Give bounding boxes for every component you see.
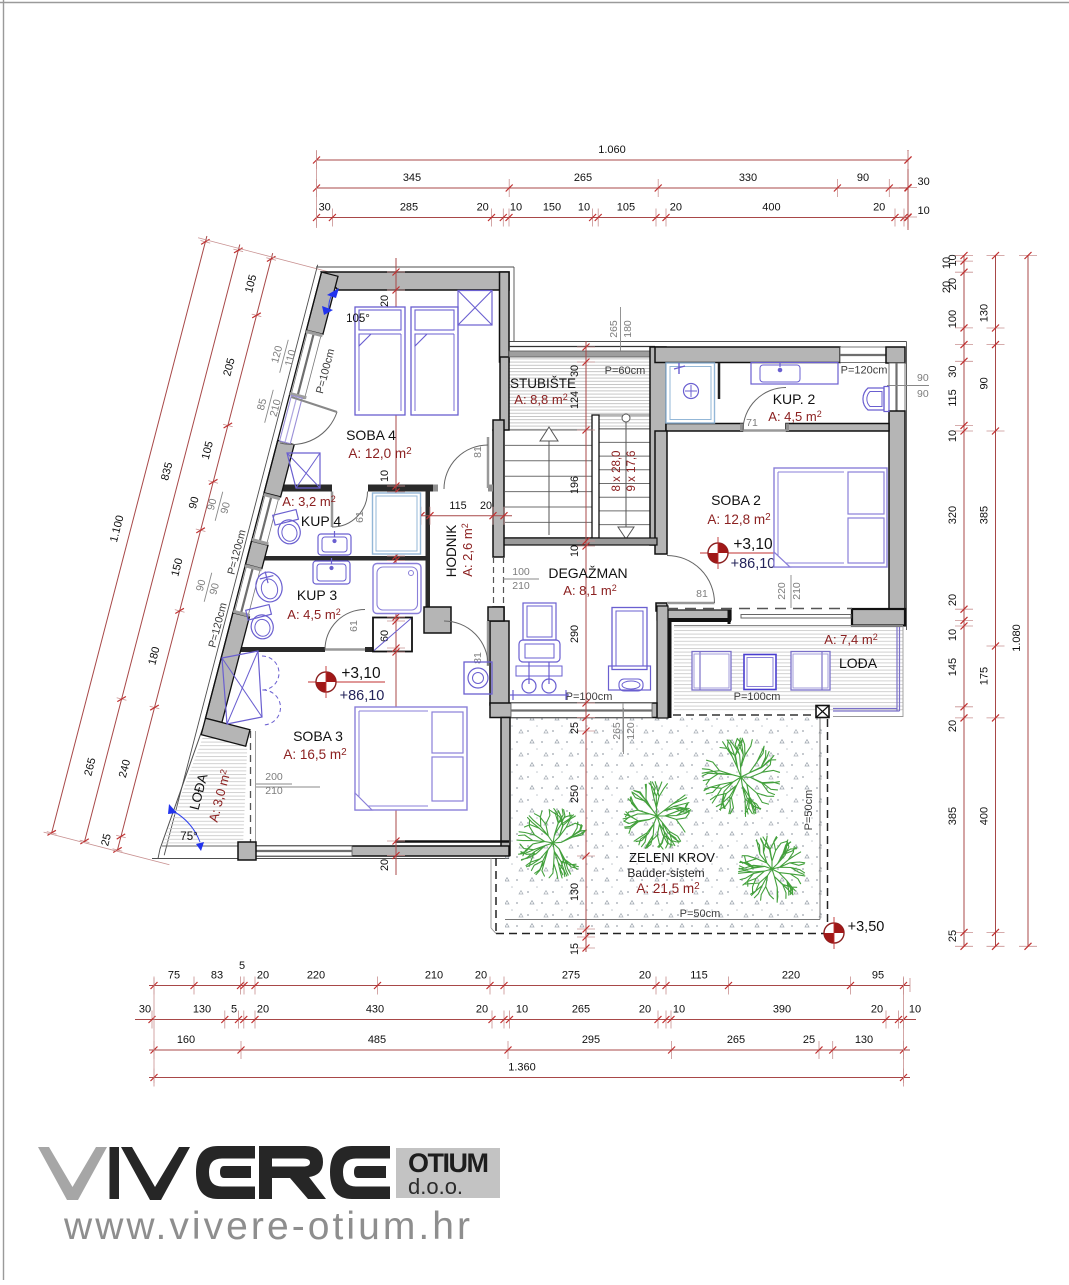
svg-text:25: 25 (569, 722, 581, 734)
svg-text:d.o.o.: d.o.o. (408, 1174, 463, 1199)
svg-text:A: 12,8 m2: A: 12,8 m2 (707, 512, 771, 527)
svg-text:100: 100 (947, 310, 959, 328)
svg-text:A: 4,5 m2: A: 4,5 m2 (768, 409, 821, 424)
svg-text:265: 265 (574, 172, 592, 184)
svg-text:10: 10 (379, 470, 391, 482)
svg-text:210: 210 (512, 580, 530, 592)
svg-text:9 x 17,6: 9 x 17,6 (626, 451, 638, 492)
svg-text:265: 265 (608, 320, 620, 338)
svg-text:180: 180 (622, 320, 634, 338)
svg-text:196: 196 (569, 476, 581, 494)
svg-text:P=100cm: P=100cm (566, 691, 613, 703)
svg-text:81: 81 (696, 588, 708, 600)
svg-text:220: 220 (307, 970, 325, 982)
svg-text:10: 10 (918, 205, 930, 217)
svg-text:430: 430 (366, 1004, 384, 1016)
svg-text:390: 390 (773, 1004, 791, 1016)
svg-text:20: 20 (257, 970, 269, 982)
svg-text:30: 30 (947, 365, 959, 377)
svg-text:200: 200 (265, 771, 283, 783)
svg-text:20: 20 (480, 500, 492, 512)
svg-text:ZELENI KROV: ZELENI KROV (629, 850, 715, 865)
svg-text:A: 2,6 m2: A: 2,6 m2 (460, 523, 475, 576)
svg-text:20: 20 (475, 970, 487, 982)
svg-text:+86,10: +86,10 (731, 556, 776, 572)
svg-text:265: 265 (611, 722, 623, 740)
svg-text:160: 160 (177, 1034, 195, 1046)
svg-text:10: 10 (941, 257, 953, 269)
svg-text:400: 400 (979, 807, 991, 825)
svg-text:275: 275 (562, 970, 580, 982)
svg-text:81: 81 (472, 446, 484, 458)
svg-text:124: 124 (569, 391, 581, 409)
svg-text:20: 20 (639, 970, 651, 982)
svg-text:10: 10 (947, 629, 959, 641)
svg-text:A: 21,5 m2: A: 21,5 m2 (636, 881, 700, 896)
svg-text:115: 115 (449, 500, 466, 512)
svg-text:A: 8,1 m2: A: 8,1 m2 (563, 583, 616, 598)
svg-text:+3,10: +3,10 (341, 665, 381, 682)
svg-text:25: 25 (803, 1034, 815, 1046)
svg-text:210: 210 (425, 970, 443, 982)
svg-text:10: 10 (510, 202, 522, 214)
svg-text:320: 320 (947, 506, 959, 524)
svg-text:20: 20 (947, 594, 959, 606)
svg-text:20: 20 (873, 202, 885, 214)
svg-text:10: 10 (578, 202, 590, 214)
svg-text:250: 250 (569, 785, 581, 803)
svg-text:30: 30 (569, 365, 581, 377)
svg-text:61: 61 (354, 511, 366, 523)
svg-text:SOBA 4: SOBA 4 (346, 427, 396, 443)
svg-text:385: 385 (979, 506, 991, 524)
svg-text:P=120cm: P=120cm (841, 365, 888, 377)
svg-text:20: 20 (639, 1004, 651, 1016)
svg-text:20: 20 (476, 1004, 488, 1016)
svg-text:330: 330 (739, 172, 757, 184)
svg-text:345: 345 (403, 172, 421, 184)
svg-text:105: 105 (617, 202, 635, 214)
svg-text:20: 20 (947, 720, 959, 732)
svg-text:90: 90 (917, 388, 929, 400)
svg-text:5: 5 (231, 1004, 237, 1016)
svg-text:120: 120 (625, 722, 637, 740)
svg-text:DEGAŽMAN: DEGAŽMAN (548, 565, 627, 581)
svg-text:10: 10 (569, 545, 581, 557)
svg-text:265: 265 (727, 1034, 745, 1046)
svg-text:130: 130 (569, 883, 581, 901)
svg-text:385: 385 (947, 807, 959, 825)
svg-text:90: 90 (917, 372, 929, 384)
svg-text:400: 400 (762, 202, 780, 214)
svg-text:1.080: 1.080 (1011, 624, 1023, 652)
svg-text:A: 8,8 m2: A: 8,8 m2 (514, 392, 567, 407)
svg-text:A: 4,5 m2: A: 4,5 m2 (287, 607, 340, 622)
svg-text:1.060: 1.060 (598, 144, 626, 156)
svg-text:30: 30 (918, 176, 930, 188)
svg-text:HODNIK: HODNIK (444, 525, 459, 578)
svg-text:100: 100 (512, 566, 530, 578)
svg-text:A: 16,5 m2: A: 16,5 m2 (283, 747, 347, 762)
svg-text:20: 20 (477, 202, 489, 214)
svg-text:220: 220 (782, 970, 800, 982)
svg-text:20: 20 (941, 281, 953, 293)
svg-text:220: 220 (776, 582, 788, 600)
svg-text:115: 115 (947, 389, 959, 407)
svg-text:5: 5 (239, 960, 245, 972)
svg-text:KUP 3: KUP 3 (297, 587, 337, 603)
svg-text:LOĐA: LOĐA (839, 655, 878, 671)
svg-text:A: 3,2 m2: A: 3,2 m2 (282, 494, 335, 509)
svg-text:A: 12,0 m2: A: 12,0 m2 (348, 446, 412, 461)
svg-text:A: 7,4 m2: A: 7,4 m2 (824, 632, 877, 647)
svg-text:20: 20 (379, 295, 391, 307)
svg-text:+3,10: +3,10 (733, 536, 773, 553)
svg-text:175: 175 (979, 667, 991, 685)
svg-text:150: 150 (543, 202, 561, 214)
svg-text:265: 265 (572, 1004, 590, 1016)
svg-text:+3,50: +3,50 (848, 919, 885, 935)
svg-text:STUBIŠTE: STUBIŠTE (510, 376, 576, 391)
svg-text:20: 20 (670, 202, 682, 214)
svg-text:Bauder-sistem: Bauder-sistem (627, 866, 704, 880)
svg-text:130: 130 (855, 1034, 873, 1046)
svg-text:95: 95 (872, 970, 884, 982)
svg-text:60: 60 (379, 630, 391, 642)
svg-text:285: 285 (400, 202, 418, 214)
svg-text:10: 10 (947, 430, 959, 442)
svg-text:83: 83 (211, 970, 223, 982)
svg-text:SOBA 3: SOBA 3 (293, 728, 343, 744)
svg-text:SOBA 2: SOBA 2 (711, 492, 761, 508)
svg-text:115: 115 (690, 970, 708, 982)
svg-text:75°: 75° (180, 831, 197, 843)
svg-text:10: 10 (909, 1004, 921, 1016)
svg-text:25: 25 (947, 930, 959, 942)
svg-text:61: 61 (348, 620, 360, 632)
svg-text:KUP 4: KUP 4 (301, 513, 341, 529)
svg-text:20: 20 (379, 859, 391, 871)
svg-text:P=60cm: P=60cm (605, 365, 646, 377)
svg-text:75: 75 (168, 970, 180, 982)
svg-text:290: 290 (569, 625, 581, 643)
svg-text:15: 15 (569, 943, 581, 955)
svg-text:90: 90 (857, 172, 869, 184)
svg-text:295: 295 (582, 1034, 600, 1046)
svg-text:8 x 28,0: 8 x 28,0 (611, 451, 623, 492)
svg-text:P=50cm: P=50cm (680, 908, 721, 920)
svg-text:71: 71 (746, 417, 758, 429)
svg-text:P=50cm: P=50cm (803, 790, 815, 831)
svg-text:145: 145 (947, 658, 959, 676)
svg-text:30: 30 (319, 202, 331, 214)
svg-text:1.360: 1.360 (508, 1062, 536, 1074)
svg-text:210: 210 (791, 582, 803, 600)
svg-text:10: 10 (516, 1004, 528, 1016)
svg-text:130: 130 (193, 1004, 211, 1016)
svg-text:20: 20 (257, 1004, 269, 1016)
svg-text:30: 30 (139, 1004, 151, 1016)
svg-text:+86,10: +86,10 (340, 688, 385, 704)
svg-text:130: 130 (979, 304, 991, 322)
svg-text:20: 20 (871, 1004, 883, 1016)
svg-text:10: 10 (673, 1004, 685, 1016)
svg-text:KUP. 2: KUP. 2 (773, 391, 816, 407)
svg-text:105°: 105° (346, 313, 370, 325)
svg-text:485: 485 (368, 1034, 386, 1046)
svg-text:P=100cm: P=100cm (734, 691, 781, 703)
svg-text:90: 90 (979, 377, 991, 389)
